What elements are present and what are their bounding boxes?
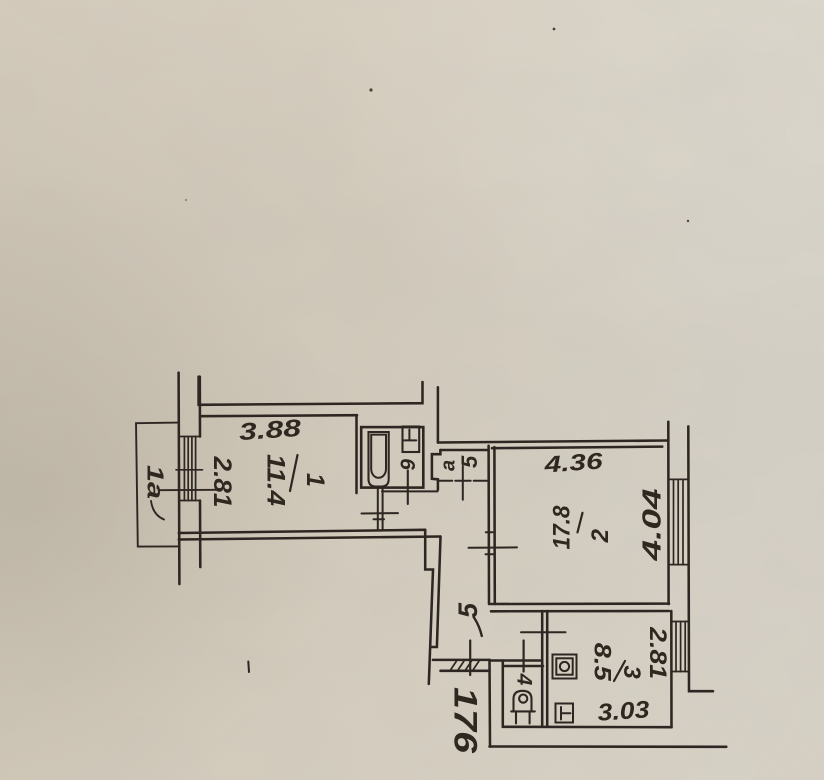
svg-text:6: 6 [396,458,419,470]
svg-text:2.81: 2.81 [208,455,236,507]
svg-text:3: 3 [618,665,645,679]
svg-text:176: 176 [448,687,484,753]
svg-text:3.03: 3.03 [597,696,651,727]
svg-text:4.04: 4.04 [637,488,667,562]
svg-text:2.81: 2.81 [644,626,671,679]
svg-text:5: 5 [453,602,483,618]
svg-text:2: 2 [587,528,614,543]
svg-text:8.5: 8.5 [589,643,616,682]
svg-text:1: 1 [301,473,329,487]
svg-text:11.4: 11.4 [262,454,290,506]
svg-text:1a: 1a [143,465,169,499]
svg-text:4.36: 4.36 [542,447,603,477]
svg-text:17.8: 17.8 [549,505,576,550]
svg-text:3.88: 3.88 [238,415,303,446]
svg-text:5: 5 [457,455,482,468]
svg-text:4: 4 [513,673,536,686]
